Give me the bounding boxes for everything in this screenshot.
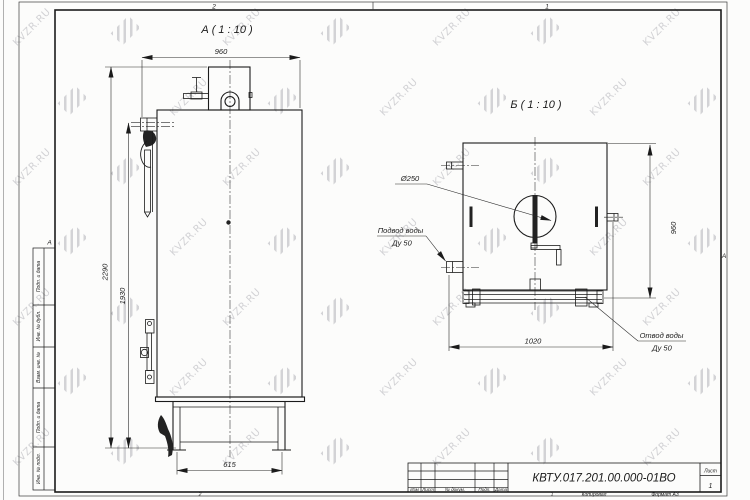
dim-1020: 1020 bbox=[525, 337, 543, 346]
inlet-callout-line2: Ду 50 bbox=[391, 239, 412, 248]
left-inventory-strip: Подп. и дата Инв. № дубл. Взам. инв. № П… bbox=[33, 248, 55, 490]
outlet-callout-line2: Ду 50 bbox=[651, 344, 672, 353]
titleblock-col-list: Лист bbox=[421, 487, 434, 492]
zone-number-bottom-right: 1 bbox=[551, 492, 554, 498]
sheet-frame: 2 1 А А 2 1 Копировал Формат А3 bbox=[4, 0, 728, 500]
technical-drawing: 2 1 А А 2 1 Копировал Формат А3 Подп. и … bbox=[0, 0, 750, 500]
ash-lever bbox=[158, 415, 173, 457]
dim-960-top: 960 bbox=[215, 47, 228, 56]
view-a-dimensions: 960 2290 1930 615 bbox=[101, 47, 301, 475]
view-a-upper-door-hinge bbox=[131, 118, 174, 217]
strip-cell-label: Взам. инв. № bbox=[36, 351, 42, 383]
titleblock-col-date: Дата bbox=[494, 487, 508, 492]
sheet-number: 1 bbox=[709, 483, 713, 490]
strip-cell-label: Инв. № подл. bbox=[36, 453, 42, 484]
view-b-manhole bbox=[514, 195, 561, 265]
titleblock-col-doc: № докум. bbox=[445, 487, 465, 492]
view-a-chimney bbox=[184, 67, 253, 110]
view-b-side: Б ( 1 : 10 ) bbox=[377, 99, 686, 353]
inlet-callout-line1: Подвод воды bbox=[378, 226, 424, 235]
titleblock-col-izm: Изм bbox=[410, 487, 419, 492]
sheet-label: Лист bbox=[703, 469, 717, 475]
zone-number-top-left: 2 bbox=[211, 3, 216, 10]
strip-cell-label: Подп. и дата bbox=[36, 402, 42, 434]
zone-letter-right: А bbox=[721, 253, 726, 260]
view-a-lower-door-hinge bbox=[141, 320, 155, 384]
view-b-callouts: Ø250 Подвод воды Ду 50 Отвод воды Ду 50 bbox=[377, 174, 686, 353]
view-b-title: Б ( 1 : 10 ) bbox=[510, 99, 562, 111]
view-a-base bbox=[158, 402, 291, 458]
strip-cell-label: Подп. и дата bbox=[36, 261, 42, 293]
drawing-sheet: KVZR.RUKVZR.RUKVZR.RUKVZR.RUKVZR.RUKVZR.… bbox=[0, 0, 750, 500]
title-block: Изм Лист № докум. Подп. Дата КВТУ.017.20… bbox=[408, 463, 721, 492]
view-b-base bbox=[463, 289, 603, 307]
copied-by-label: Копировал bbox=[582, 492, 607, 498]
zone-number-bottom-left: 2 bbox=[198, 492, 202, 498]
dim-960-side: 960 bbox=[669, 221, 678, 234]
dim-1930: 1930 bbox=[118, 287, 127, 305]
format-label: Формат А3 bbox=[651, 492, 679, 498]
diameter-callout: Ø250 bbox=[400, 174, 420, 183]
document-number: КВТУ.017.201.00.000-01ВО bbox=[532, 473, 675, 485]
view-a-title: А ( 1 : 10 ) bbox=[200, 24, 253, 36]
view-b-dimensions: 960 1020 bbox=[449, 144, 678, 352]
titleblock-col-sign: Подп. bbox=[478, 487, 490, 492]
zone-letter-left: А bbox=[46, 240, 51, 247]
zone-number-top-right: 1 bbox=[545, 3, 549, 10]
dim-615: 615 bbox=[223, 460, 236, 469]
dim-2290: 2290 bbox=[101, 263, 110, 282]
view-a-front: А ( 1 : 10 ) bbox=[101, 24, 305, 475]
outlet-callout-line1: Отвод воды bbox=[640, 331, 684, 340]
strip-cell-label: Инв. № дубл. bbox=[36, 311, 42, 342]
